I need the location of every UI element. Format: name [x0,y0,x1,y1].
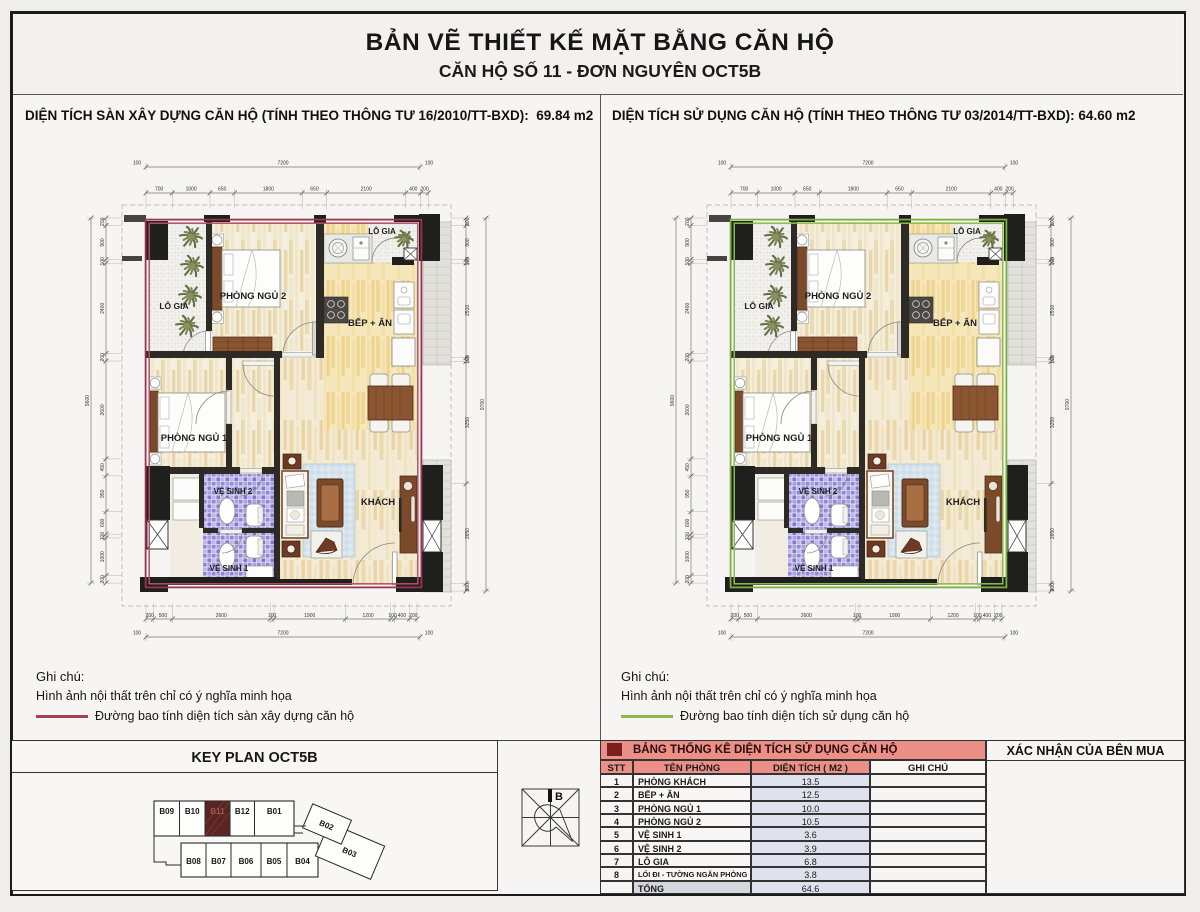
svg-text:B: B [555,791,563,803]
